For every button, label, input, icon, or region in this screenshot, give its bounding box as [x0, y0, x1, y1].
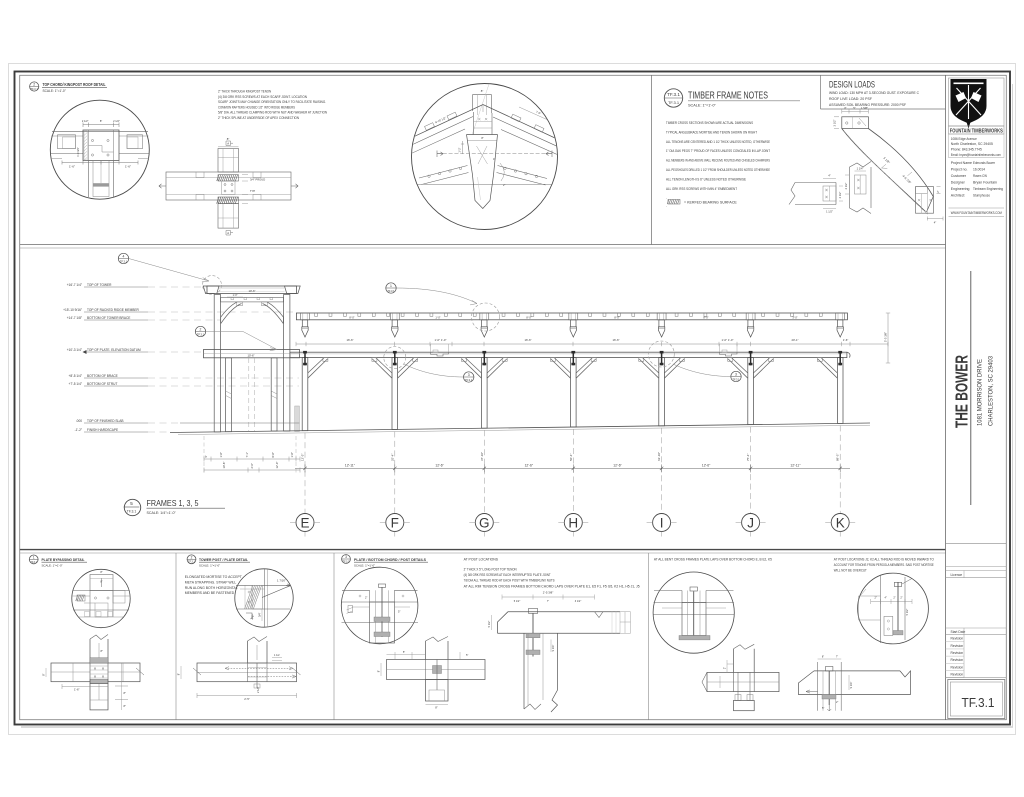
svg-text:8": 8": [42, 673, 46, 675]
svg-text:5": 5": [822, 707, 824, 710]
svg-text:1'-0" 1'-0": 1'-0" 1'-0": [435, 338, 447, 342]
svg-text:7": 7": [547, 600, 549, 603]
svg-text:TF.3.1: TF.3.1: [127, 509, 137, 513]
svg-text:Customer: Customer: [951, 174, 967, 178]
svg-text:2 1/2": 2 1/2": [113, 119, 120, 123]
svg-text:G: G: [479, 515, 490, 530]
svg-text:2'-0": 2'-0": [250, 463, 254, 468]
svg-text:75'-4": 75'-4": [746, 454, 750, 461]
svg-text:TF.3.1: TF.3.1: [31, 87, 39, 91]
svg-text:10'-6": 10'-6": [248, 289, 255, 293]
svg-text:Raven CW: Raven CW: [973, 174, 988, 178]
svg-text:TF.3.1: TF.3.1: [667, 92, 680, 97]
svg-text:8": 8": [481, 136, 483, 140]
svg-text:1'-8": 1'-8": [219, 452, 223, 457]
svg-text:16'-6": 16'-6": [612, 338, 619, 342]
svg-text:.: .: [666, 204, 667, 208]
svg-text:K: K: [836, 515, 845, 530]
svg-text:1'-8": 1'-8": [290, 452, 294, 457]
svg-text:MEMBERS AND BE FASTENED: MEMBERS AND BE FASTENED: [185, 591, 235, 595]
svg-text:8": 8": [481, 89, 484, 93]
svg-text:SCALE: 1"=1'-0": SCALE: 1"=1'-0": [354, 563, 375, 567]
svg-text:8": 8": [101, 649, 103, 653]
svg-text:8'-0": 8'-0": [349, 316, 354, 320]
svg-text:F: F: [391, 515, 399, 530]
svg-text:1 1/2": 1 1/2": [826, 210, 833, 214]
svg-text:Edmunds Bower: Edmunds Bower: [973, 161, 996, 165]
svg-text:(4) 3/8 GRK RSS SCREWS AT EACH: (4) 3/8 GRK RSS SCREWS AT EACH SCARF JOI…: [218, 95, 307, 99]
svg-text:A: A: [227, 142, 229, 146]
svg-text:Engineering: Engineering: [951, 187, 970, 191]
svg-text:TF.3.1: TF.3.1: [30, 561, 37, 564]
svg-text:-1'-2": -1'-2": [75, 428, 82, 432]
svg-text:Architect: Architect: [951, 194, 965, 198]
svg-text:4": 4": [493, 158, 495, 161]
svg-text:ROOF LIVE LOAD: 20 PSF: ROOF LIVE LOAD: 20 PSF: [829, 96, 872, 101]
svg-text:ALL GRK RSS SCREWS WITH MIN 4": ALL GRK RSS SCREWS WITH MIN 4" EMBEDMENT: [666, 187, 738, 191]
svg-text:1 1/4": 1 1/4": [857, 167, 864, 171]
svg-text:Designer: Designer: [951, 181, 966, 185]
svg-text:.: .: [666, 196, 667, 200]
svg-text:ACCOUNT FOR TENONS FROM PERGOL: ACCOUNT FOR TENONS FROM PERGOLA MEMBERS.…: [834, 563, 935, 567]
svg-text:+14'-7 1/8": +14'-7 1/8": [67, 316, 82, 320]
svg-text:SCALE: 1"=1'-0": SCALE: 1"=1'-0": [199, 563, 220, 567]
svg-text:WILL NOT BE OVERCUT: WILL NOT BE OVERCUT: [834, 569, 867, 573]
svg-text:20'-1": 20'-1": [791, 338, 798, 342]
svg-text:TF.3.1: TF.3.1: [197, 332, 205, 336]
svg-text:2": 2": [724, 667, 727, 669]
svg-text:TIMBER FRAME NOTES: TIMBER FRAME NOTES: [688, 90, 768, 102]
svg-text:12'-0": 12'-0": [275, 462, 279, 469]
svg-text:(4) 3/8 GRK RSS SCREWS AT EACH: (4) 3/8 GRK RSS SCREWS AT EACH INTERRUPT…: [464, 573, 551, 577]
svg-text:PLATE BYPASSING DETAIL: PLATE BYPASSING DETAIL: [42, 558, 86, 562]
svg-text:2": 2": [503, 183, 505, 187]
svg-text:9 1/4": 9 1/4": [849, 682, 853, 689]
svg-text:ALL TENON LENGTH IS 6" UNLESS: ALL TENON LENGTH IS 6" UNLESS NOTED OTHE…: [666, 177, 746, 181]
svg-text:5 1/2": 5 1/2": [905, 609, 909, 616]
svg-text:2" THICK SPLINE AT UNDERSIDE O: 2" THICK SPLINE AT UNDERSIDE OF APEX CON…: [218, 116, 299, 120]
svg-text:12'-6": 12'-6": [613, 463, 622, 467]
svg-text:Revision: Revision: [951, 658, 964, 662]
svg-text:TF.3.1: TF.3.1: [465, 378, 473, 382]
svg-text:.000: .000: [76, 419, 82, 423]
svg-text:5: 5: [130, 501, 133, 506]
svg-text:BOTTOM OF BRACE: BOTTOM OF BRACE: [87, 374, 118, 378]
svg-text:Timbeam Engineering: Timbeam Engineering: [973, 187, 1003, 191]
svg-text:1'-6": 1'-6": [74, 688, 80, 692]
svg-text:H: H: [568, 515, 578, 530]
svg-text:37'-10": 37'-10": [480, 452, 484, 461]
svg-text:8'-0": 8'-0": [614, 316, 619, 320]
svg-text:2 1/2": 2 1/2": [844, 183, 848, 190]
svg-text:SCALE: 1"=1'-0": SCALE: 1"=1'-0": [43, 89, 66, 93]
svg-text:THE BOWER: THE BOWER: [952, 355, 972, 428]
svg-text:META STRAPPING. STRAP WILL: META STRAPPING. STRAP WILL: [185, 580, 237, 584]
svg-text:Revision: Revision: [951, 673, 964, 677]
svg-text:TOP OF PLATE. ELEVATION DATUM: TOP OF PLATE. ELEVATION DATUM: [87, 348, 141, 352]
svg-text:TF.3.1: TF.3.1: [343, 560, 350, 563]
svg-text:1" DIA OAK PEGS 7" PROUD OF FA: 1" DIA OAK PEGS 7" PROUD OF FACES UNLESS…: [666, 149, 771, 153]
svg-text:Bryan Fountain: Bryan Fountain: [973, 181, 997, 185]
svg-text:3: 3: [345, 555, 347, 559]
svg-text:3 1/2": 3 1/2": [575, 600, 582, 603]
svg-text:+16'-7 1/4": +16'-7 1/4": [67, 283, 82, 287]
svg-text:Project Name: Project Name: [951, 161, 972, 165]
svg-text:AT POST LOCATIONS J2, K2 ALL T: AT POST LOCATIONS J2, K2 ALL THREAD ROD …: [834, 557, 934, 561]
svg-text:2": 2": [836, 701, 838, 704]
svg-text:8": 8": [377, 670, 381, 672]
svg-text:TOP OF TOWER: TOP OF TOWER: [87, 283, 112, 287]
svg-text:6'-8": 6'-8": [271, 452, 275, 457]
svg-text:2: 2: [33, 82, 35, 86]
svg-text:7": 7": [836, 656, 838, 659]
svg-text:BOTTOM OF STRUT: BOTTOM OF STRUT: [87, 382, 117, 386]
svg-text:FINISH HARDSCAPE: FINISH HARDSCAPE: [87, 428, 118, 432]
svg-text:Revision: Revision: [951, 637, 964, 641]
svg-text:TF.3.1: TF.3.1: [962, 695, 995, 710]
svg-text:Email: bryan@fountaintimberwor: Email: bryan@fountaintimberworks.com: [951, 153, 1001, 157]
svg-text:8": 8": [100, 570, 102, 574]
svg-text:2" THICK THROUGH KINGPOST TENO: 2" THICK THROUGH KINGPOST TENON: [218, 90, 271, 94]
svg-text:5/8" DIA. ALL THREAD CLAMPING: 5/8" DIA. ALL THREAD CLAMPING ROD WITH N…: [218, 111, 327, 115]
svg-text:Stumphouse: Stumphouse: [973, 194, 990, 198]
svg-text:TOP OF RACKED RIDGE MEMBER: TOP OF RACKED RIDGE MEMBER: [87, 308, 139, 312]
svg-text:4": 4": [828, 174, 830, 178]
svg-text:88'-3": 88'-3": [836, 454, 840, 461]
svg-text:BOTTOM OF TOWER BRACE: BOTTOM OF TOWER BRACE: [87, 316, 130, 320]
svg-text:Phone: 843.345.7745: Phone: 843.345.7745: [951, 148, 982, 152]
svg-text:5": 5": [398, 610, 400, 614]
svg-text:+8'-5 1/4": +8'-5 1/4": [68, 374, 82, 378]
svg-text:12'-6": 12'-6": [525, 463, 534, 467]
svg-text:FRAMES 1, 3, 5: FRAMES 1, 3, 5: [147, 499, 199, 508]
svg-text:WWW.FOUNTAINTIMBERWORKS.COM: WWW.FOUNTAINTIMBERWORKS.COM: [951, 211, 1002, 215]
svg-text:TOP OF FINISHED SLAB: TOP OF FINISHED SLAB: [87, 419, 124, 423]
svg-text:1'-0" 1'-0": 1'-0" 1'-0": [722, 338, 734, 342]
svg-text:8": 8": [822, 656, 824, 659]
svg-text:COMMON RAFTERS HOUSED 1/2" INT: COMMON RAFTERS HOUSED 1/2" INTO RIDGE ME…: [218, 105, 295, 109]
svg-text:12'-6": 12'-6": [702, 463, 711, 467]
svg-text:10'-6": 10'-6": [222, 462, 226, 469]
svg-text:4": 4": [934, 221, 936, 225]
svg-text:3: 3: [735, 372, 737, 376]
svg-text:TF.3.1: TF.3.1: [120, 259, 128, 263]
svg-text:7/8 DIA ALL THREAD ROD AT EACH: 7/8 DIA ALL THREAD ROD AT EACH POST WITH…: [464, 579, 556, 583]
svg-text:E: E: [300, 515, 309, 530]
svg-text:DESIGN LOADS: DESIGN LOADS: [829, 80, 875, 90]
svg-text:1'-6": 1'-6": [843, 338, 849, 342]
svg-text:2": 2": [874, 596, 876, 599]
svg-text:25'-4": 25'-4": [390, 454, 394, 461]
svg-text:Project no.: Project no.: [951, 168, 968, 172]
svg-text:5": 5": [466, 654, 468, 657]
svg-text:3/4": 3/4": [257, 612, 261, 617]
svg-text:2": 2": [365, 597, 367, 600]
svg-text:1 1/2: 1 1/2: [274, 654, 280, 657]
svg-text:8": 8": [227, 137, 230, 141]
svg-text:Start Date: Start Date: [951, 630, 966, 634]
svg-text:5'-5 3/8": 5'-5 3/8": [884, 332, 888, 342]
svg-text:2: 2: [191, 555, 193, 559]
svg-text:+15'-10 9/16": +15'-10 9/16": [63, 308, 82, 312]
svg-text:8": 8": [177, 673, 181, 675]
svg-text:8'-0": 8'-0": [526, 316, 531, 320]
svg-text:+10'-3 1/4": +10'-3 1/4": [67, 348, 82, 352]
svg-text:North Charleston, SC 29405: North Charleston, SC 29405: [951, 142, 993, 146]
svg-text:AT ALL RIM TENSION CROSS FRAME: AT ALL RIM TENSION CROSS FRAMES BOTTOM C…: [464, 584, 640, 588]
svg-text:SCARF JOINTS MAY CHANGE ORIENT: SCARF JOINTS MAY CHANGE ORIENTATION ONLY…: [218, 100, 326, 104]
svg-text:8'-0": 8'-0": [703, 316, 708, 320]
svg-text:5": 5": [853, 106, 855, 110]
svg-text:4": 4": [885, 596, 887, 599]
svg-text:ALL PEGSHOLES DRILLED 1 1/2" F: ALL PEGSHOLES DRILLED 1 1/2" FROM SHOULD…: [666, 168, 770, 172]
svg-text:5 1/2": 5 1/2": [487, 621, 491, 628]
svg-text:Revision: Revision: [951, 665, 964, 669]
svg-text:2" THICK X 5" LONG POST TOP TE: 2" THICK X 5" LONG POST TOP TENON: [464, 568, 517, 572]
svg-text:12'-6": 12'-6": [435, 463, 444, 467]
svg-text:FOUNTAIN TIMBERWORKS: FOUNTAIN TIMBERWORKS: [950, 128, 1003, 134]
svg-text:8": 8": [124, 704, 126, 708]
svg-text:RUN ALONG BOTH HORIZONTAL: RUN ALONG BOTH HORIZONTAL: [185, 586, 238, 590]
svg-text:8": 8": [124, 691, 126, 695]
svg-text:1'-0": 1'-0": [233, 294, 238, 297]
svg-text:2": 2": [893, 596, 895, 599]
svg-text:2 1/2": 2 1/2": [256, 686, 260, 693]
svg-text:1 7/16": 1 7/16": [277, 579, 286, 583]
svg-text:TF.3.1: TF.3.1: [387, 289, 395, 293]
svg-text:TF.3.1: TF.3.1: [732, 377, 740, 381]
svg-text:16'-6": 16'-6": [346, 338, 353, 342]
svg-text:16'-6": 16'-6": [524, 338, 531, 342]
svg-text:2'-5": 2'-5": [244, 697, 250, 701]
svg-text:8": 8": [435, 706, 437, 710]
svg-text:TYP: TYP: [250, 189, 255, 193]
svg-text:3/4" PROUD: 3/4" PROUD: [250, 178, 265, 182]
svg-text:ALL MEMBERS IN AND ABOVE WALL: ALL MEMBERS IN AND ABOVE WALL RECEIVE RO…: [666, 159, 770, 163]
svg-text:WIND LOAD: 130 MPH AT 3-SECOND: WIND LOAD: 130 MPH AT 3-SECOND GUST. EXP…: [829, 90, 919, 95]
svg-text:Revision: Revision: [951, 644, 964, 648]
svg-text:4: 4: [123, 254, 125, 258]
svg-text:1'-2": 1'-2": [457, 147, 461, 152]
svg-text:A: A: [227, 231, 229, 235]
svg-text:3: 3: [468, 373, 470, 377]
svg-text:1086 Edge Avenue: 1086 Edge Avenue: [951, 137, 977, 141]
svg-text:62'-10": 62'-10": [657, 452, 661, 461]
svg-text:CHARLESTON, SC 29403: CHARLESTON, SC 29403: [988, 356, 995, 426]
svg-text:10'-6": 10'-6": [247, 354, 254, 358]
svg-text:TOP CHORD/ KINGPOST ROOF DETAI: TOP CHORD/ KINGPOST ROOF DETAIL: [43, 82, 106, 87]
svg-text:= KERFED BEARING SURFACE: = KERFED BEARING SURFACE: [684, 201, 737, 205]
svg-text:TIMBER CROSS SECTIONS SHOWN AR: TIMBER CROSS SECTIONS SHOWN ARE ACTUAL D…: [666, 121, 753, 125]
svg-text:5 1/2": 5 1/2": [514, 600, 521, 603]
svg-text:12'-11": 12'-11": [790, 463, 801, 467]
svg-text:SCALE: 1/4"=1'-0": SCALE: 1/4"=1'-0": [147, 511, 177, 515]
svg-text:ELONGATED MORTISE TO ACCEPT: ELONGATED MORTISE TO ACCEPT: [185, 575, 242, 579]
svg-text:TYPICAL ANGLEBRACE MORTISE AND: TYPICAL ANGLEBRACE MORTISE AND TENON SHO…: [666, 130, 758, 134]
svg-text:TOWER POST / PLATE DETAIL: TOWER POST / PLATE DETAIL: [199, 558, 249, 562]
svg-text:1'-0": 1'-0": [435, 316, 440, 320]
svg-text:Licence: Licence: [951, 573, 963, 577]
svg-text:PLATE / BOTTOM CHORD / POST DE: PLATE / BOTTOM CHORD / POST DETAILS: [354, 558, 426, 562]
svg-text:2": 2": [936, 190, 940, 192]
svg-text:2 1/2": 2 1/2": [82, 119, 89, 123]
svg-text:TF.3.1: TF.3.1: [188, 561, 195, 564]
svg-text:1: 1: [33, 555, 35, 559]
svg-text:8": 8": [100, 119, 102, 123]
svg-text:2 1/2": 2 1/2": [838, 192, 842, 199]
svg-text:ALL TENONS ARE CENTERED AND 1: ALL TENONS ARE CENTERED AND 1 1/2 THICK …: [666, 140, 770, 144]
svg-text:1: 1: [390, 284, 392, 288]
svg-text:8": 8": [100, 581, 102, 584]
svg-text:3'-0": 3'-0": [792, 316, 797, 320]
svg-text:1081 MORRISON DRIVE: 1081 MORRISON DRIVE: [977, 359, 984, 426]
svg-text:12'-11": 12'-11": [345, 463, 356, 467]
svg-text:J: J: [747, 515, 754, 530]
svg-text:I: I: [660, 515, 664, 530]
svg-text:7'-1": 7'-1": [245, 452, 249, 457]
svg-text:12'-5": 12'-5": [301, 454, 305, 461]
svg-text:50'-4": 50'-4": [569, 454, 573, 461]
svg-text:+7'-5 1/4": +7'-5 1/4": [68, 382, 82, 386]
svg-text:1 5/8": 1 5/8": [861, 106, 868, 110]
svg-text:9 1/4": 9 1/4": [551, 645, 555, 652]
svg-text:5": 5": [403, 651, 405, 654]
svg-text:16.0014: 16.0014: [973, 168, 985, 172]
svg-text:Revision: Revision: [951, 651, 964, 655]
svg-text:2: 2: [200, 327, 202, 331]
svg-text:1'-6": 1'-6": [125, 165, 131, 169]
svg-text:AT ALL BENT CROSS FRAMES PLATE: AT ALL BENT CROSS FRAMES PLATE LAPS OVER…: [654, 557, 772, 561]
svg-text:TF.3.1: TF.3.1: [668, 100, 680, 105]
svg-text:2'-5 3/8": 2'-5 3/8": [543, 591, 554, 595]
svg-text:SCALE: 1"=1'-0": SCALE: 1"=1'-0": [688, 104, 716, 108]
svg-text:1'-3 3/4": 1'-3 3/4": [76, 147, 80, 157]
svg-text:SCALE: 1"=1'-0": SCALE: 1"=1'-0": [42, 563, 63, 567]
svg-text:3 1/2": 3 1/2": [833, 119, 837, 126]
svg-text:3": 3": [844, 106, 846, 110]
svg-text:1'-6": 1'-6": [69, 165, 75, 169]
svg-text:2": 2": [900, 596, 902, 599]
svg-text:AT POST LOCATIONS: AT POST LOCATIONS: [464, 557, 499, 561]
